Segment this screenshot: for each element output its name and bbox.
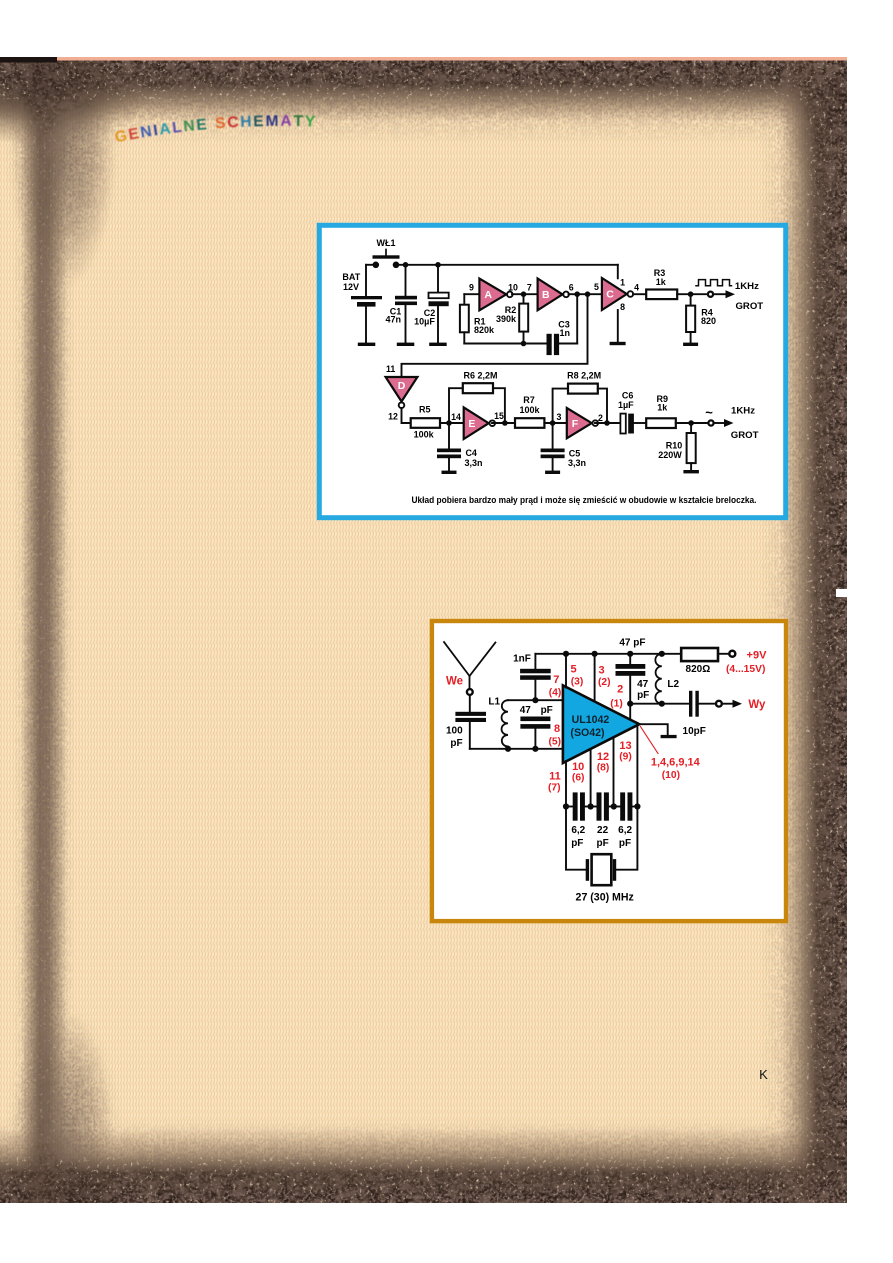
svg-text:We: We <box>446 676 463 688</box>
svg-text:BAT: BAT <box>342 272 360 282</box>
svg-text:N: N <box>183 117 196 135</box>
svg-text:pF: pF <box>596 838 608 849</box>
svg-text:4: 4 <box>634 283 639 293</box>
svg-text:R5: R5 <box>419 405 431 415</box>
svg-text:47: 47 <box>520 705 532 716</box>
svg-text:47: 47 <box>637 679 649 690</box>
svg-text:pF: pF <box>450 738 462 749</box>
svg-text:3,3n: 3,3n <box>568 458 586 468</box>
svg-text:WŁ1: WŁ1 <box>377 238 396 248</box>
svg-text:220W: 220W <box>658 450 682 460</box>
svg-text:22: 22 <box>597 825 609 836</box>
svg-text:3,3n: 3,3n <box>464 458 482 468</box>
svg-text:(10): (10) <box>662 770 680 781</box>
svg-text:47n: 47n <box>385 314 401 324</box>
svg-text:14: 14 <box>451 412 461 422</box>
svg-text:pF: pF <box>637 690 649 701</box>
svg-text:820: 820 <box>701 316 716 326</box>
svg-text:R10: R10 <box>666 440 683 450</box>
svg-text:11: 11 <box>549 770 561 782</box>
svg-text:pF: pF <box>571 838 583 849</box>
svg-text:(SO42): (SO42) <box>570 727 604 739</box>
svg-text:D: D <box>398 380 406 392</box>
svg-text:1,4,6,9,14: 1,4,6,9,14 <box>651 757 701 769</box>
svg-text:(4): (4) <box>549 688 562 699</box>
svg-text:12: 12 <box>597 751 609 763</box>
svg-text:R7: R7 <box>523 395 535 405</box>
svg-text:3: 3 <box>557 412 562 422</box>
svg-text:6,2: 6,2 <box>618 825 632 836</box>
svg-text:1: 1 <box>620 278 625 288</box>
svg-text:10pF: 10pF <box>683 726 706 737</box>
svg-text:GROT: GROT <box>735 301 763 312</box>
svg-text:5: 5 <box>570 664 576 676</box>
svg-text:12: 12 <box>388 412 398 422</box>
svg-text:27 (30) MHz: 27 (30) MHz <box>576 892 634 904</box>
svg-text:820Ω: 820Ω <box>686 664 711 675</box>
svg-text:2: 2 <box>598 413 603 423</box>
svg-text:100k: 100k <box>519 405 540 415</box>
svg-text:pF: pF <box>619 838 631 849</box>
svg-text:6: 6 <box>569 283 574 293</box>
svg-text:+9V: +9V <box>747 650 768 662</box>
svg-text:T: T <box>293 113 303 130</box>
svg-text:(9): (9) <box>619 752 632 763</box>
svg-text:~: ~ <box>705 405 713 420</box>
svg-text:L2: L2 <box>667 679 679 690</box>
svg-text:9: 9 <box>469 283 474 293</box>
svg-text:1n: 1n <box>560 328 571 338</box>
svg-text:10: 10 <box>572 761 584 773</box>
svg-text:S: S <box>215 115 227 133</box>
svg-text:7: 7 <box>527 283 532 293</box>
svg-text:L1: L1 <box>488 697 500 708</box>
svg-text:A: A <box>484 289 492 301</box>
svg-text:pF: pF <box>541 705 553 716</box>
svg-text:5: 5 <box>594 282 599 292</box>
svg-text:1nF: 1nF <box>513 654 531 665</box>
svg-text:8: 8 <box>554 723 560 735</box>
svg-text:8: 8 <box>620 302 625 312</box>
svg-text:820k: 820k <box>474 325 495 335</box>
svg-text:E: E <box>468 418 475 430</box>
svg-text:(8): (8) <box>597 763 610 774</box>
svg-text:1KHz: 1KHz <box>735 281 759 292</box>
svg-text:(4...15V): (4...15V) <box>726 664 766 675</box>
svg-text:M: M <box>265 113 278 130</box>
svg-text:12V: 12V <box>343 282 359 292</box>
svg-text:6,2: 6,2 <box>571 825 585 836</box>
svg-text:Y: Y <box>305 113 317 130</box>
svg-text:10µF: 10µF <box>414 317 435 327</box>
svg-text:R8 2,2M: R8 2,2M <box>567 371 601 381</box>
svg-text:A: A <box>158 120 171 138</box>
svg-text:(5): (5) <box>549 737 562 748</box>
svg-text:1k: 1k <box>657 403 668 413</box>
svg-text:B: B <box>542 289 550 301</box>
svg-text:47 pF: 47 pF <box>619 638 645 649</box>
svg-text:A: A <box>280 113 291 130</box>
svg-text:1KHz: 1KHz <box>731 406 755 417</box>
svg-text:C4: C4 <box>465 448 477 458</box>
svg-text:7: 7 <box>553 674 559 686</box>
svg-text:1k: 1k <box>656 277 667 287</box>
svg-text:(2): (2) <box>598 677 611 688</box>
svg-text:R6 2,2M: R6 2,2M <box>463 371 497 381</box>
svg-text:(1): (1) <box>610 698 623 709</box>
svg-text:E: E <box>253 113 264 130</box>
svg-text:(6): (6) <box>572 773 585 784</box>
svg-text:11: 11 <box>386 364 395 374</box>
svg-text:3: 3 <box>598 665 604 677</box>
svg-text:Wy: Wy <box>748 699 766 711</box>
svg-text:F: F <box>572 418 579 430</box>
svg-text:10: 10 <box>508 282 518 292</box>
svg-text:100k: 100k <box>414 430 435 440</box>
svg-text:Układ pobiera bardzo mały prą: Układ pobiera bardzo mały prąd i może si… <box>412 495 757 505</box>
svg-text:(3): (3) <box>571 677 584 688</box>
svg-text:100: 100 <box>446 726 463 737</box>
svg-text:C: C <box>606 289 614 301</box>
svg-text:C: C <box>227 114 239 132</box>
svg-text:13: 13 <box>619 740 631 752</box>
svg-text:E: E <box>196 116 208 134</box>
svg-text:390k: 390k <box>496 314 517 324</box>
svg-text:(7): (7) <box>548 782 561 793</box>
svg-text:UL1042: UL1042 <box>572 714 610 726</box>
svg-text:K: K <box>759 1067 768 1082</box>
svg-text:H: H <box>240 113 252 130</box>
svg-text:2: 2 <box>617 684 623 696</box>
svg-text:1µF: 1µF <box>618 400 634 410</box>
svg-text:C5: C5 <box>569 449 581 459</box>
svg-text:15: 15 <box>494 411 504 421</box>
svg-text:GROT: GROT <box>731 430 759 441</box>
